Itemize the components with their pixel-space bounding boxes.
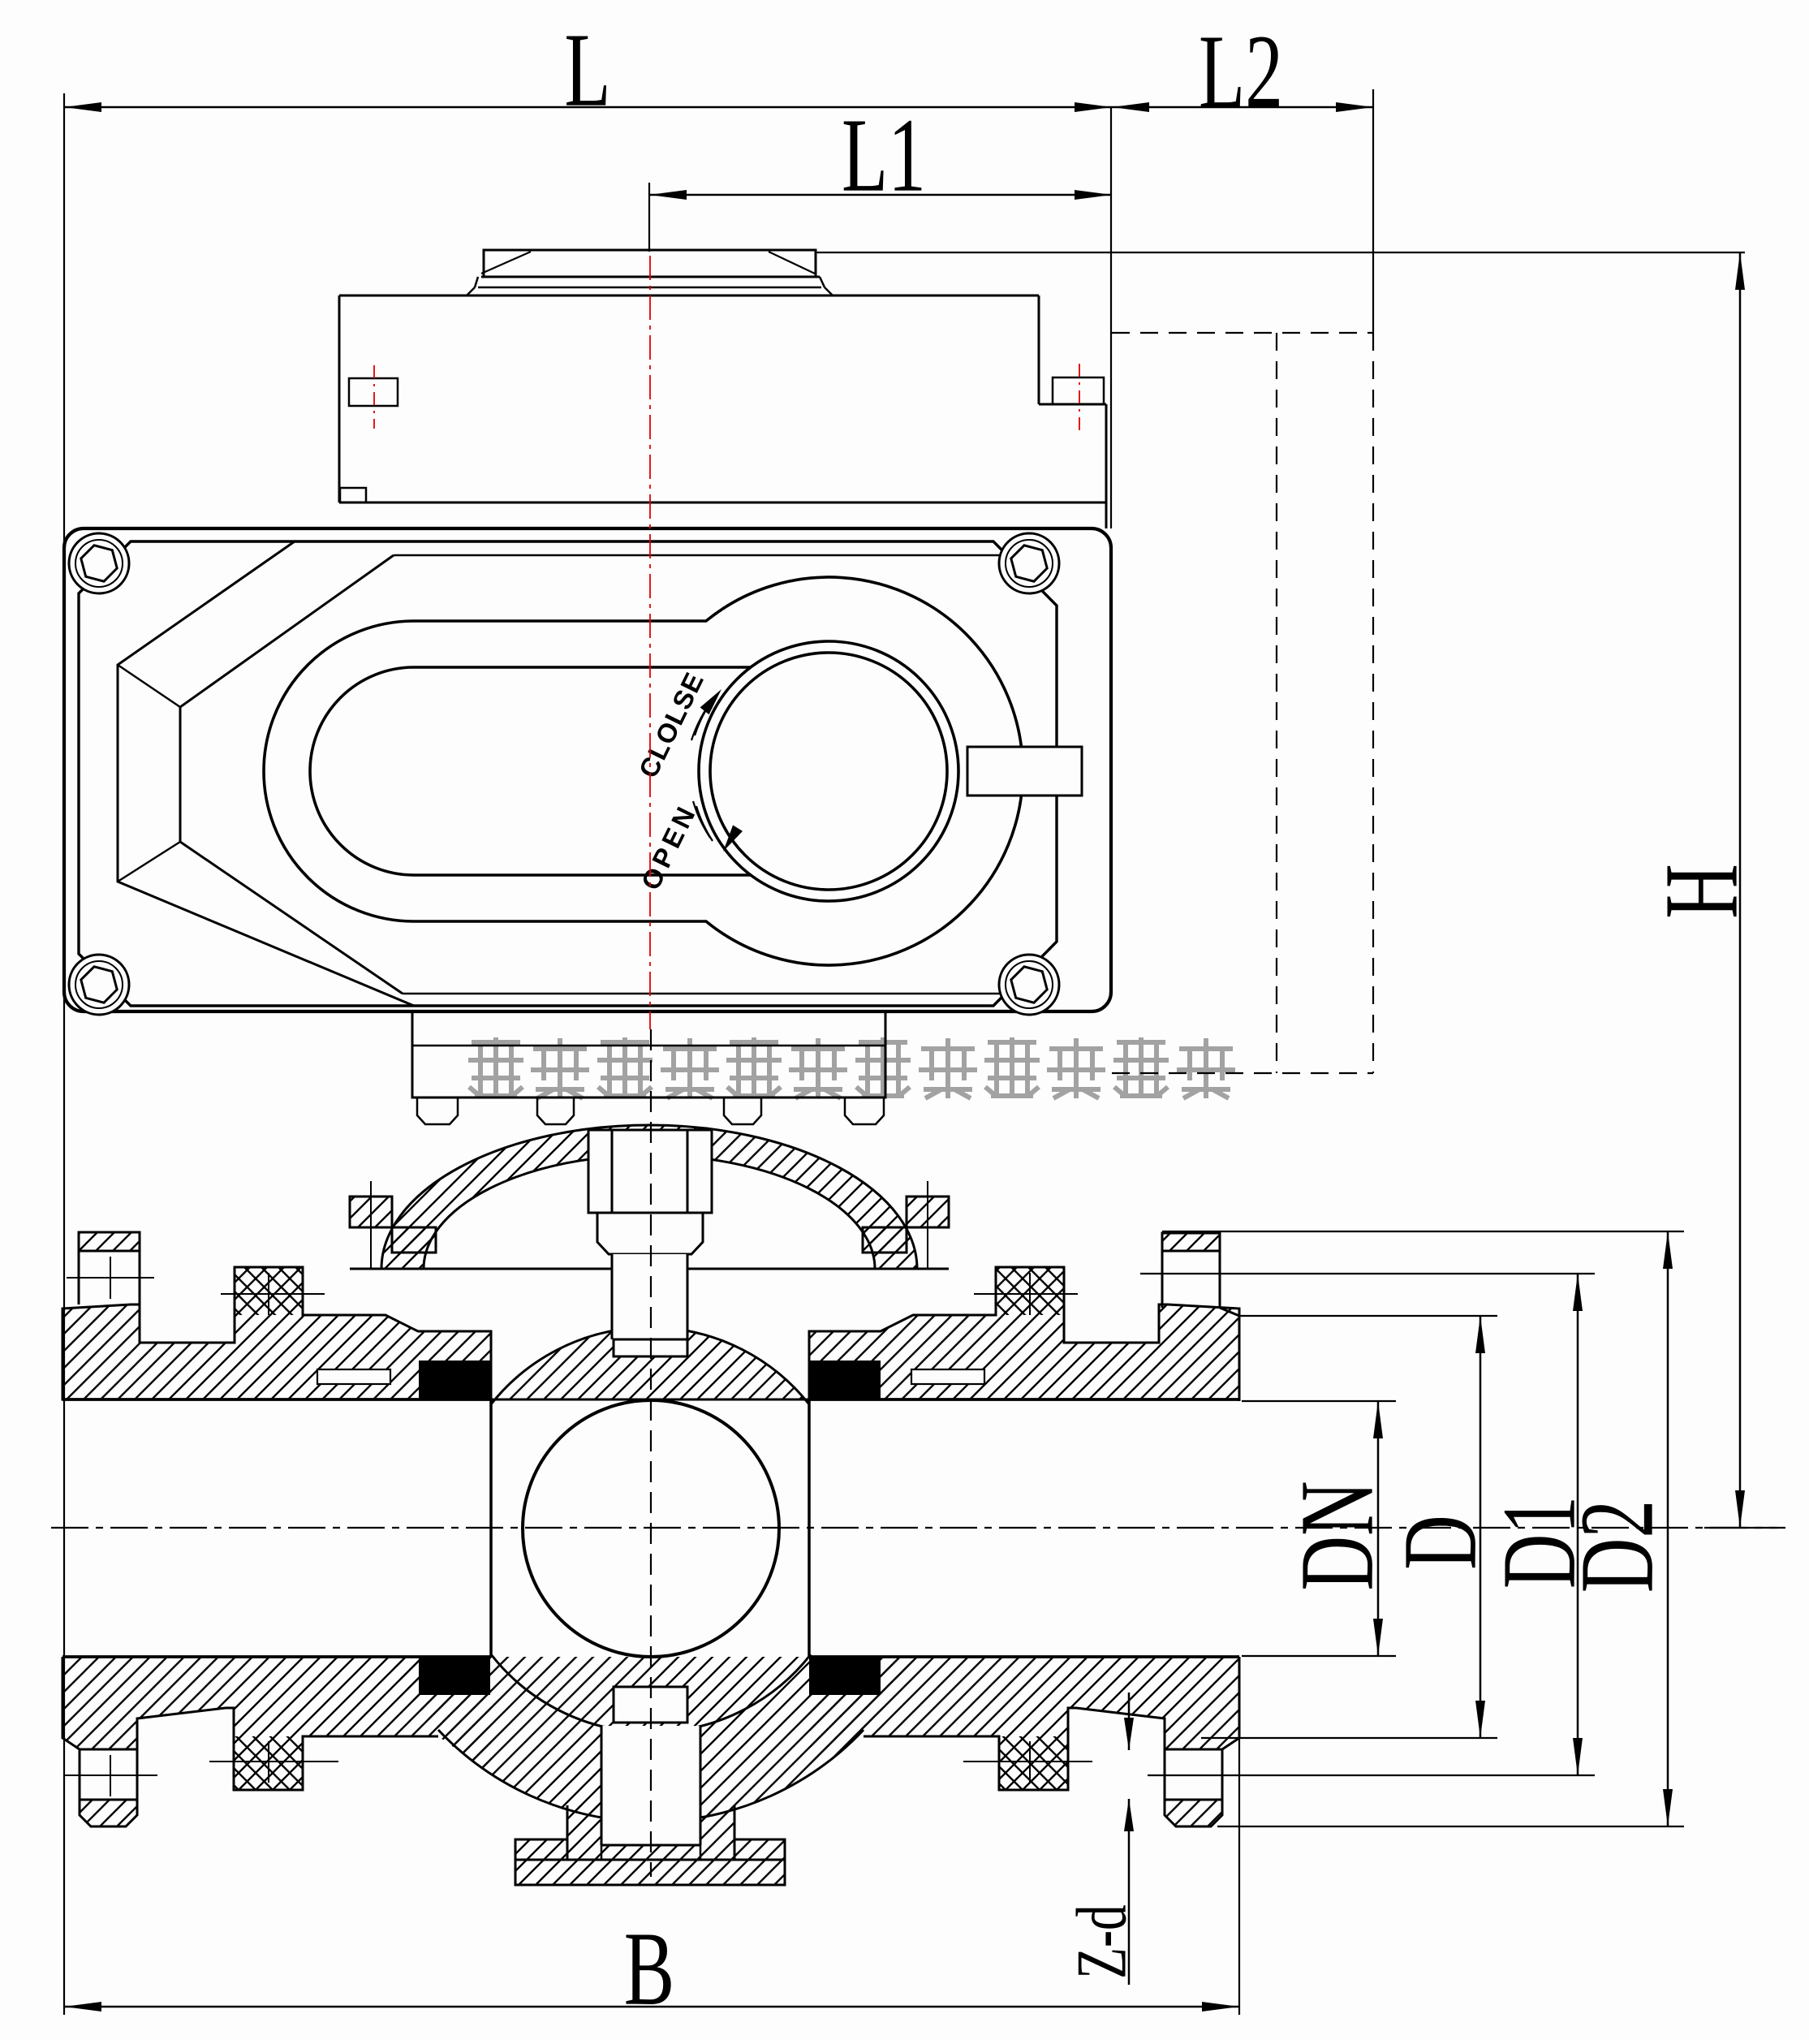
- svg-text:L: L: [564, 11, 610, 129]
- svg-text:L2: L2: [1199, 13, 1283, 131]
- svg-text:B: B: [624, 1910, 674, 2028]
- svg-text:L1: L1: [842, 97, 926, 214]
- svg-text:Z-d: Z-d: [1062, 1904, 1141, 1978]
- svg-text:D2: D2: [1558, 1500, 1676, 1593]
- svg-text:H: H: [1643, 864, 1760, 919]
- svg-text:DN: DN: [1278, 1481, 1396, 1590]
